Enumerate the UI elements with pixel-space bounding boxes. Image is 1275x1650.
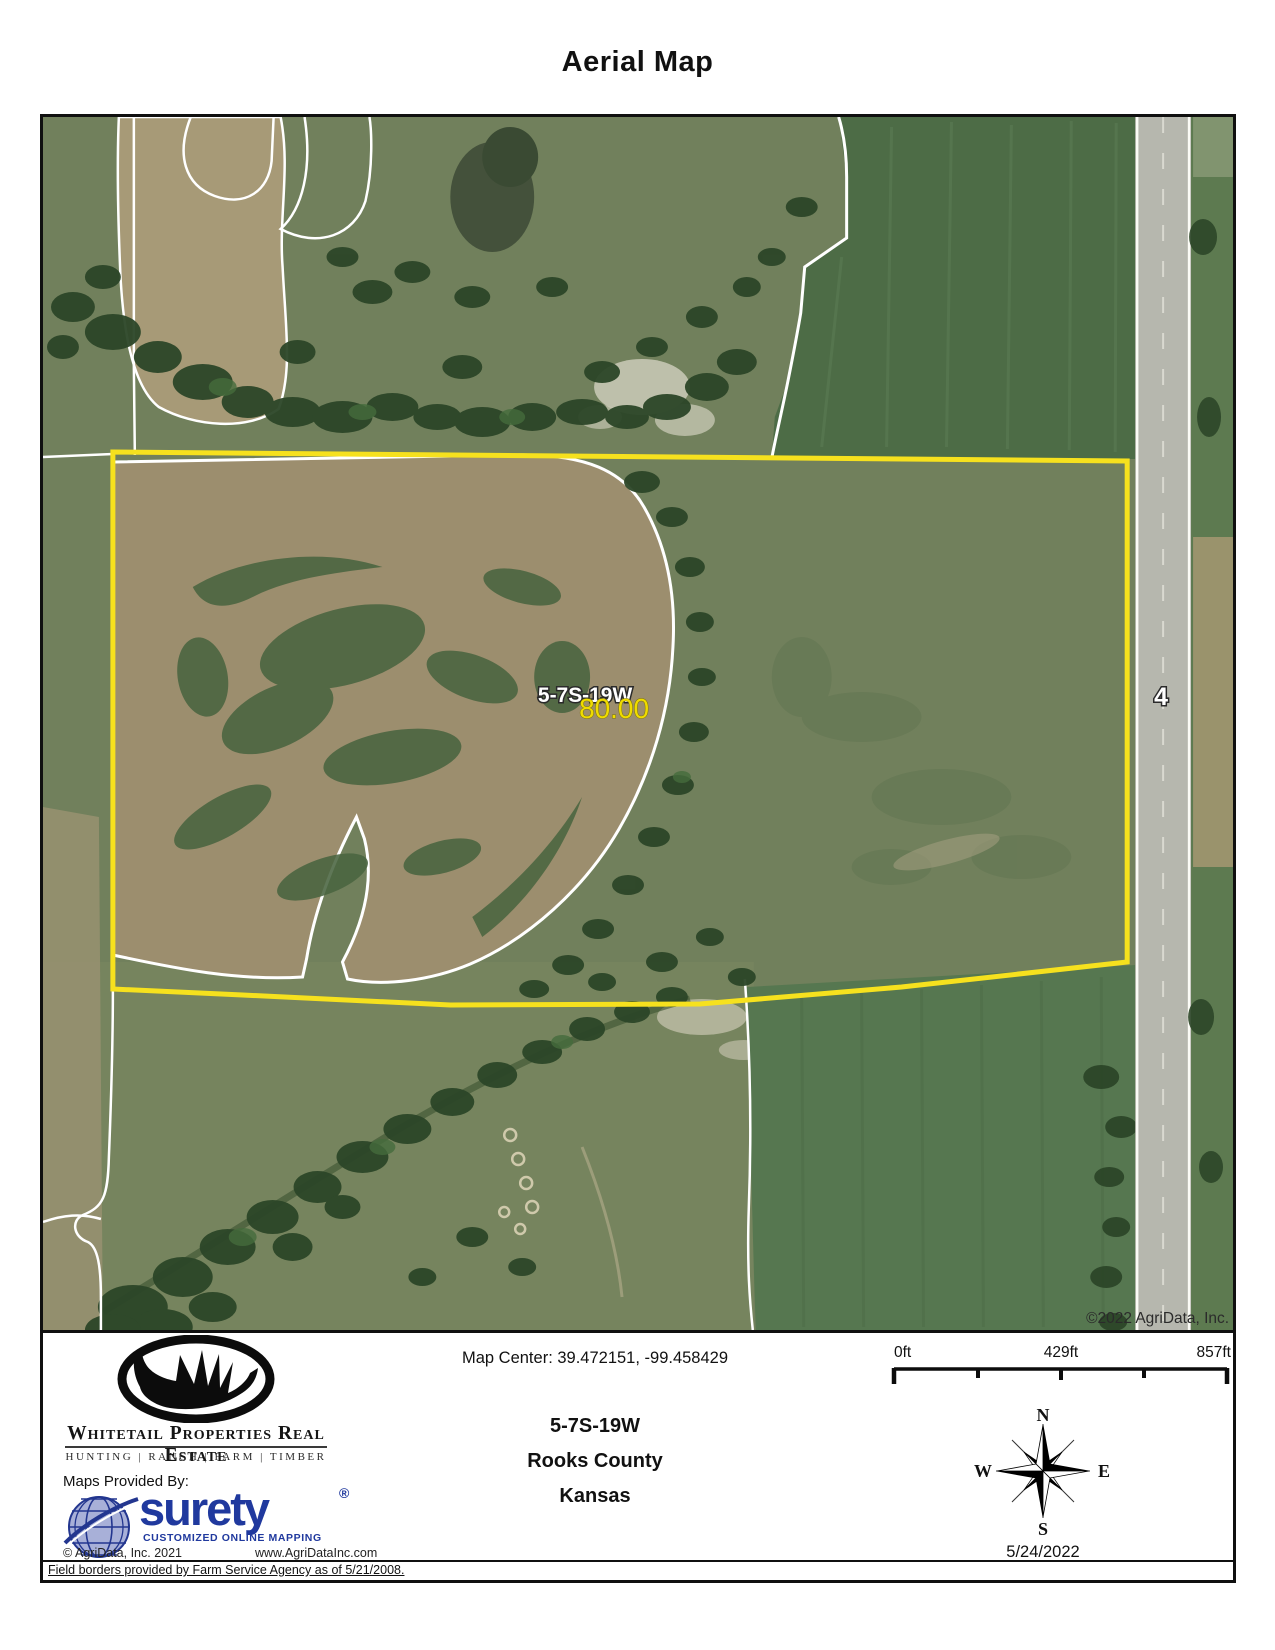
imagery-copyright: ©2022 AgriData, Inc.	[1086, 1310, 1229, 1327]
road-number-label: 4	[1154, 683, 1168, 711]
surety-wordmark: surety	[139, 1481, 268, 1536]
agridata-copyright: © AgriData, Inc. 2021	[63, 1546, 182, 1560]
compass-west-label: W	[974, 1461, 992, 1481]
field-lower-right	[747, 965, 1135, 1330]
strip-east-tan	[1193, 537, 1233, 867]
surety-tagline: CUSTOMIZED ONLINE MAPPING	[143, 1532, 322, 1544]
brand-tagline: HUNTING | RANCH | FARM | TIMBER	[43, 1451, 349, 1463]
scale-label-end: 857ft	[1197, 1344, 1232, 1361]
strip-east-pale	[1193, 117, 1233, 177]
map-center-coordinates: Map Center: 39.472151, -99.458429	[305, 1349, 885, 1368]
field-borders-note-text: Field borders provided by Farm Service A…	[48, 1563, 404, 1577]
acreage-label: 80.00	[579, 693, 649, 724]
location-state: Kansas	[305, 1485, 885, 1508]
map-document-frame: 5-7S-19W 80.00 4 ©2022 AgriData, Inc. Wh…	[40, 114, 1236, 1583]
field-borders-note: Field borders provided by Farm Service A…	[43, 1560, 1233, 1578]
pond-trees	[482, 127, 538, 187]
whitetail-antler-logo	[116, 1335, 276, 1423]
compass-cardinals	[997, 1425, 1089, 1517]
scale-bar: 0ft 429ft 857ft	[888, 1341, 1233, 1389]
agridata-website: www.AgriDataInc.com	[255, 1546, 377, 1560]
scale-label-mid: 429ft	[1044, 1344, 1079, 1361]
field-border-vertical	[134, 117, 135, 455]
bare-strip-left	[43, 807, 103, 1330]
brand-divider	[65, 1446, 327, 1448]
compass-south-label: S	[1038, 1519, 1048, 1537]
aerial-map-canvas: 5-7S-19W 80.00 4 ©2022 AgriData, Inc.	[43, 117, 1233, 1333]
aerial-map-page: { "title": "Aerial Map", "map": { "secti…	[0, 0, 1275, 1650]
location-county: Rooks County	[305, 1450, 885, 1473]
compass-rose-icon: N S W E	[938, 1409, 1148, 1537]
map-footer: Whitetail Properties Real Estate HUNTING…	[43, 1333, 1233, 1560]
aerial-imagery: 5-7S-19W 80.00 4 ©2022 AgriData, Inc.	[43, 117, 1233, 1330]
compass-east-label: E	[1098, 1461, 1110, 1481]
location-section: 5-7S-19W	[305, 1415, 885, 1438]
page-title: Aerial Map	[0, 46, 1275, 79]
compass-north-label: N	[1037, 1409, 1050, 1425]
scale-label-0: 0ft	[894, 1344, 912, 1361]
